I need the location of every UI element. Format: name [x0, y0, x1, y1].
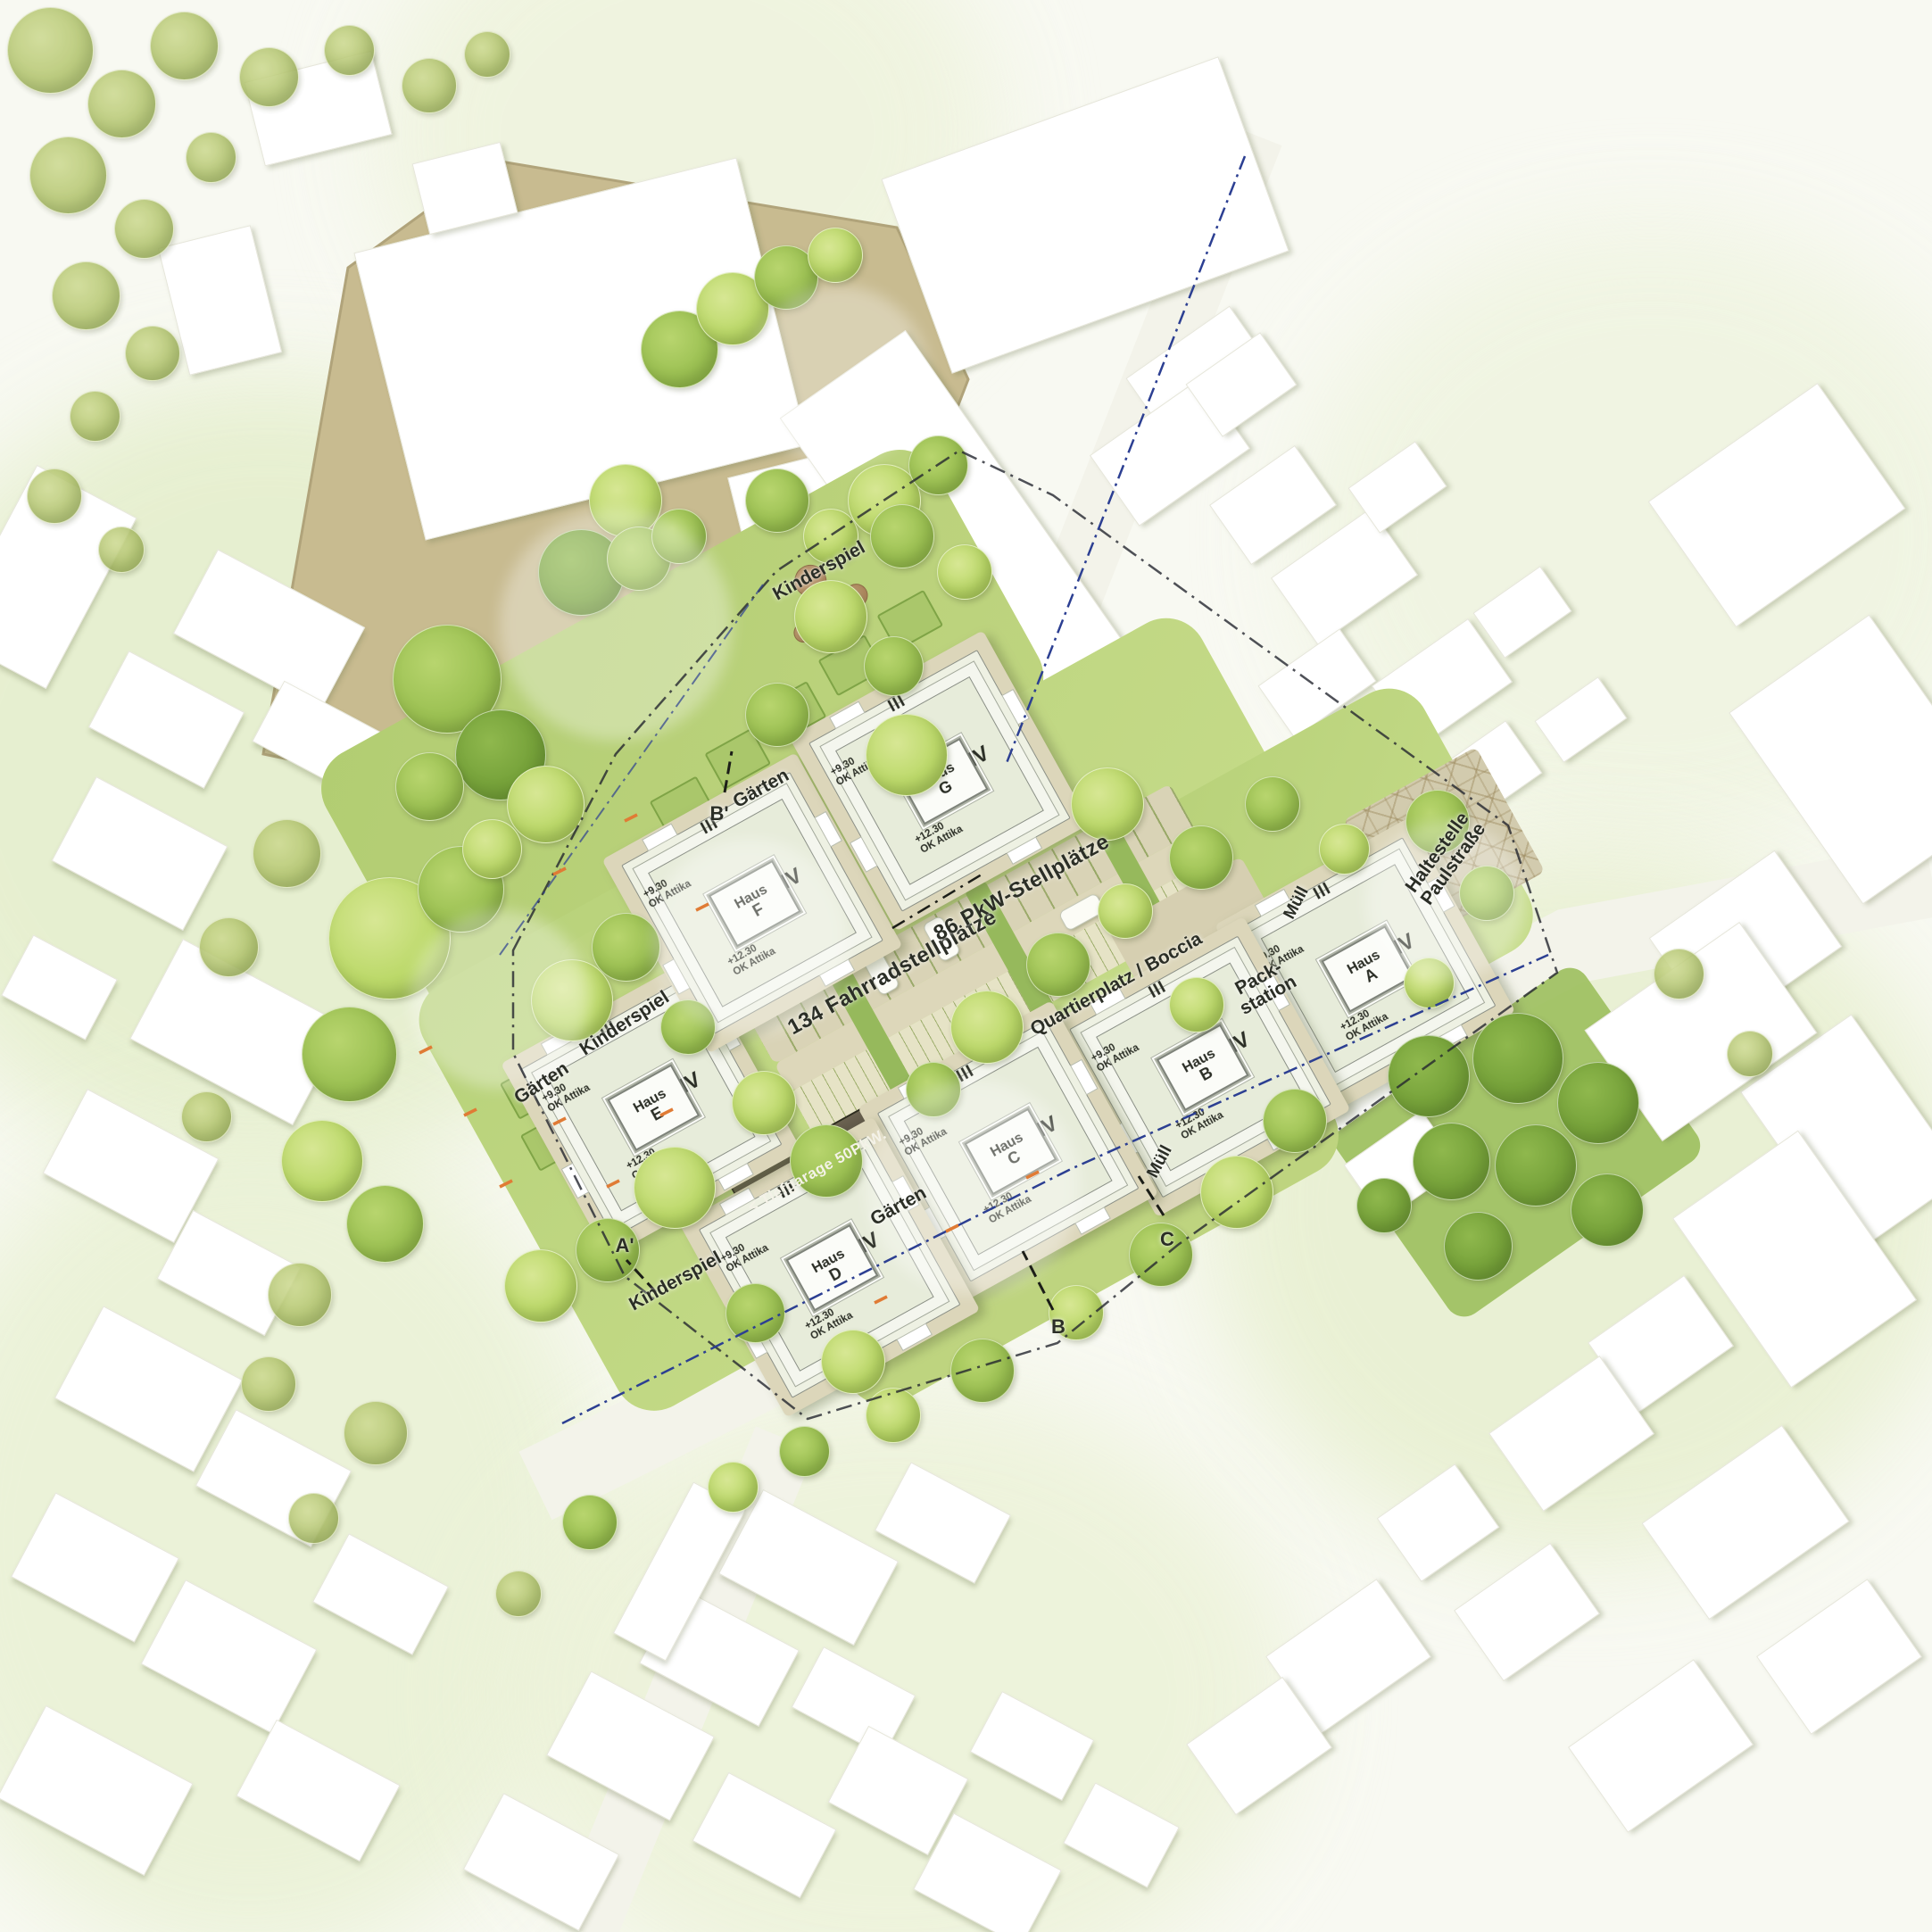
section-marker-c: C [1160, 1228, 1174, 1251]
site-plan-canvas: III IV +9.30OK Attika +12.30OK Attika Ha… [0, 0, 1932, 1932]
property-line-blue [1007, 156, 1245, 763]
section-marker-b-prime: B' [709, 802, 728, 825]
section-line [1139, 1176, 1164, 1215]
orange-accents [419, 815, 1039, 1303]
section-line [725, 751, 732, 792]
property-line-blue [500, 585, 763, 955]
section-marker-b: B [1051, 1315, 1066, 1339]
overlay-lines-layer [0, 0, 1932, 1932]
section-line [1023, 1251, 1053, 1310]
section-marker-a: A' [615, 1234, 634, 1257]
